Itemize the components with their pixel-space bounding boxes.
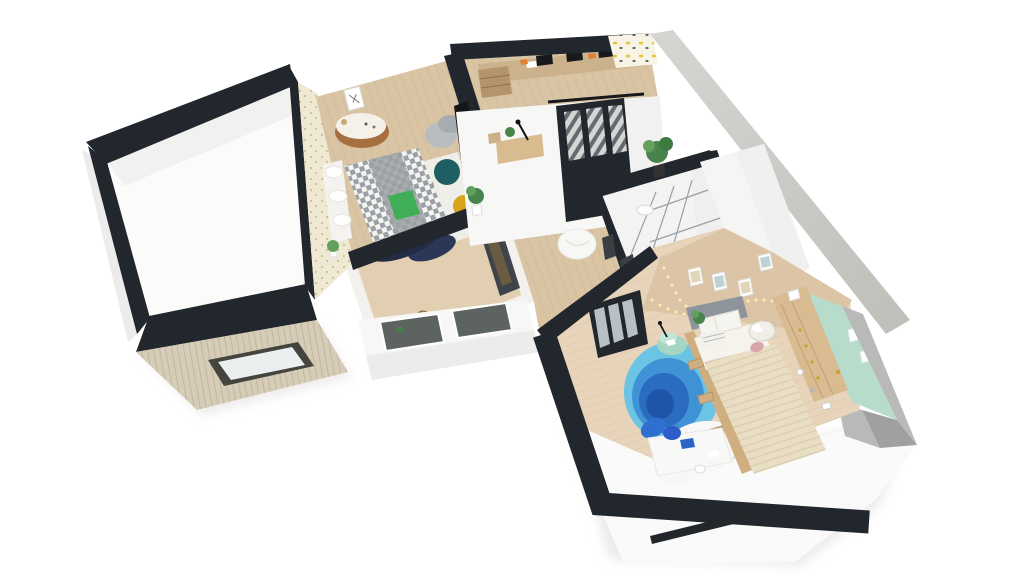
- floorplan-render: Empty room Roof with skylight Kitchen di…: [0, 0, 1024, 576]
- plant-pot: [653, 164, 665, 178]
- office-yellow-wallpaper: [608, 33, 658, 68]
- plant-foliage: [327, 240, 339, 252]
- room-left: Empty room: [82, 64, 317, 352]
- plant-foliage: [659, 137, 673, 151]
- blue-chair: [663, 426, 681, 440]
- dresser-top: [336, 113, 386, 139]
- pillow: [333, 214, 351, 226]
- picture-art: [760, 256, 771, 268]
- basket-pillow: [760, 322, 772, 330]
- ceiling-light: [637, 205, 653, 215]
- floorplan-stage: Empty room Roof with skylight Kitchen di…: [0, 0, 1024, 576]
- table-lamp-head: [658, 321, 662, 325]
- desk-lamp-head: [516, 120, 521, 125]
- desk-accessory: [520, 59, 528, 65]
- monitor: [536, 54, 553, 66]
- desk-plant: [505, 127, 515, 137]
- dresser-basket: [341, 119, 347, 125]
- plant-foliage: [466, 186, 476, 196]
- desk-accessory: [588, 53, 596, 59]
- plant-pot: [472, 204, 482, 216]
- waste-bin: [695, 465, 705, 473]
- plant-behind-glass: [396, 327, 404, 333]
- plant-foliage: [643, 140, 655, 152]
- picture-art: [714, 275, 725, 288]
- picture-art: [740, 281, 751, 294]
- picture-art: [690, 270, 701, 283]
- pillow: [325, 166, 343, 178]
- dresser-item: [365, 123, 368, 126]
- rug-teal-circle: [434, 159, 460, 185]
- dresser-item: [373, 126, 376, 129]
- beanbag: [558, 229, 596, 259]
- laptop: [526, 61, 537, 68]
- pillow: [329, 190, 347, 202]
- office-drawers: [478, 66, 512, 98]
